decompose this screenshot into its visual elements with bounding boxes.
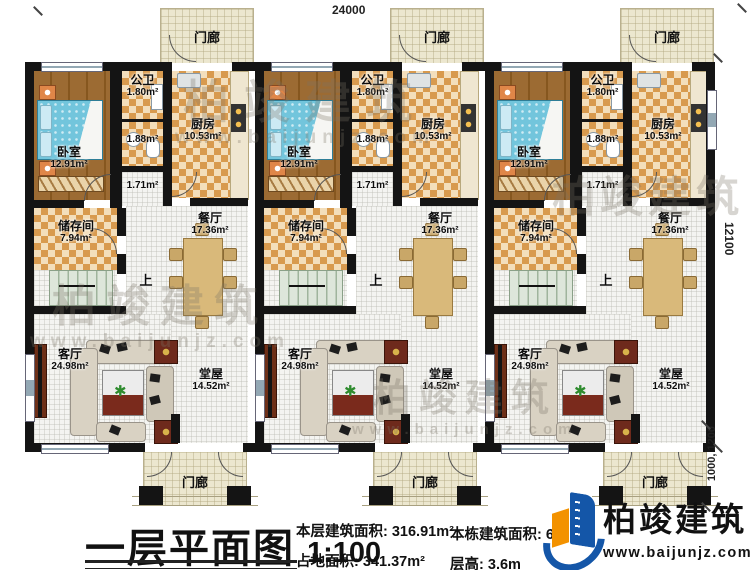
stairs [279, 270, 343, 306]
stairs-up-label: 上 [365, 274, 387, 289]
dimension-tick [737, 3, 747, 13]
plant-icon: ✱ [114, 382, 127, 400]
logo-icon [543, 489, 597, 565]
wall [582, 119, 623, 122]
window [501, 62, 563, 72]
stat-floor-height: 层高: 3.6m [450, 553, 554, 570]
stairs-up-label: 上 [135, 274, 157, 289]
porch-label: 门廊 [144, 472, 246, 491]
porch-bottom: 门廊 [373, 452, 477, 506]
plant-icon: ✱ [344, 382, 357, 400]
nightstand [499, 85, 516, 100]
stairs-arrow-icon [59, 285, 95, 287]
plant-icon: ✱ [574, 382, 587, 400]
stove [231, 104, 246, 132]
house-unit-3: 门廊 ✱ [485, 62, 715, 452]
room-label-main-hall: 堂屋14.52m² [635, 368, 707, 393]
window [501, 444, 569, 454]
room-label-kitchen: 厨房10.53m² [633, 118, 693, 143]
dining-table [643, 238, 683, 316]
porch-bottom: 门廊 [143, 452, 247, 506]
house-unit-1: 门廊 ✱ [25, 62, 255, 452]
room-label-dining: 餐厅17.36m² [403, 212, 477, 237]
wall [352, 166, 393, 172]
room-label-main-hall: 堂屋14.52m² [175, 368, 247, 393]
kitchen-sink [637, 73, 661, 88]
stats-column-2: 本栋建筑面积: 6 层高: 3.6m [450, 523, 554, 570]
room-label-public-bath: 公卫1.80m² [580, 74, 625, 99]
wall [577, 208, 586, 236]
porch-label: 门廊 [374, 472, 476, 491]
stats-column-1: 本层建筑面积: 316.91m² 占地面积: 341.37m² [296, 520, 454, 570]
side-table [614, 340, 638, 364]
wall [631, 414, 640, 443]
room-label-living: 客厅24.98m² [499, 348, 561, 373]
wall [420, 198, 478, 206]
wall [352, 119, 393, 122]
wall [401, 414, 410, 443]
wall [347, 208, 356, 236]
wall [264, 306, 356, 314]
window [25, 354, 35, 422]
brand-name: 柏竣建筑 [603, 493, 750, 541]
stairs-arrow-icon [519, 285, 555, 287]
porch-top: 门廊 [390, 8, 484, 63]
stairs [509, 270, 573, 306]
window [271, 62, 333, 72]
wall [171, 414, 180, 443]
dimension-porch-depth: 1000, 1200 [706, 426, 718, 481]
wall [122, 166, 163, 172]
wall [692, 62, 715, 71]
dining-table [183, 238, 223, 316]
wall [243, 443, 255, 452]
wall [190, 198, 248, 206]
floor-plan-image: 门廊 ✱ [0, 0, 750, 570]
porch-top: 门廊 [620, 8, 714, 63]
side-table [154, 340, 178, 364]
room-label-bath: 1.88m² [580, 134, 625, 145]
room-label-bath: 1.88m² [120, 134, 165, 145]
kitchen-sink [407, 73, 431, 88]
window [41, 444, 109, 454]
dimension-tick [33, 6, 43, 16]
wall [462, 62, 485, 71]
wall [494, 306, 586, 314]
wall [232, 62, 255, 71]
room-label-kitchen: 厨房10.53m² [173, 118, 233, 143]
dining-table [413, 238, 453, 316]
room-label-bedroom: 卧室12.91m² [497, 146, 561, 171]
title-underline [85, 560, 297, 569]
window [707, 90, 717, 150]
room-label-dining: 餐厅17.36m² [633, 212, 707, 237]
wall [347, 254, 356, 274]
room-label-storage: 储存间7.94m² [497, 220, 575, 245]
wall [117, 208, 126, 236]
porch-top: 门廊 [160, 8, 254, 63]
wall [34, 200, 84, 208]
room-label-living: 客厅24.98m² [269, 348, 331, 373]
brand-logo: 柏竣建筑 www.baijunjz.com [543, 489, 748, 567]
window [485, 354, 495, 422]
room-label-hallway: 1.71m² [580, 180, 625, 191]
stairs-arrow-icon [289, 285, 325, 287]
dimension-height: 12100 [722, 222, 736, 255]
stat-land-area: 占地面积: 341.37m² [296, 550, 454, 570]
window [271, 444, 339, 454]
brand-website: www.baijunjz.com [603, 545, 750, 561]
room-label-bedroom: 卧室12.91m² [37, 146, 101, 171]
dimension-width: 24000 [332, 3, 365, 17]
room-label-storage: 储存间7.94m² [37, 220, 115, 245]
brand-text: 柏竣建筑 www.baijunjz.com [603, 493, 750, 561]
wall [577, 254, 586, 274]
window [41, 62, 103, 72]
porch-label: 门廊 [161, 27, 253, 46]
stat-floor-area: 本层建筑面积: 316.91m² [296, 520, 454, 541]
window [255, 354, 265, 422]
wall [582, 166, 623, 172]
wall [494, 200, 544, 208]
side-table [384, 340, 408, 364]
stove [691, 104, 706, 132]
stairs-up-label: 上 [595, 274, 617, 289]
stairs [49, 270, 113, 306]
room-label-hallway: 1.71m² [350, 180, 395, 191]
stove [461, 104, 476, 132]
room-label-main-hall: 堂屋14.52m² [405, 368, 477, 393]
room-label-bath: 1.88m² [350, 134, 395, 145]
house-unit-2: 门廊 ✱ [255, 62, 485, 452]
kitchen-sink [177, 73, 201, 88]
nightstand [39, 85, 56, 100]
room-label-living: 客厅24.98m² [39, 348, 101, 373]
room-label-storage: 储存间7.94m² [267, 220, 345, 245]
stat-building-area: 本栋建筑面积: 6 [450, 523, 554, 544]
wall [473, 443, 485, 452]
room-label-hallway: 1.71m² [120, 180, 165, 191]
porch-label: 门廊 [621, 27, 713, 46]
wall [264, 200, 314, 208]
room-label-public-bath: 公卫1.80m² [350, 74, 395, 99]
room-label-public-bath: 公卫1.80m² [120, 74, 165, 99]
room-label-dining: 餐厅17.36m² [173, 212, 247, 237]
room-label-kitchen: 厨房10.53m² [403, 118, 463, 143]
nightstand [269, 85, 286, 100]
wall [650, 198, 708, 206]
porch-label: 门廊 [391, 27, 483, 46]
wall [122, 119, 163, 122]
room-label-bedroom: 卧室12.91m² [267, 146, 331, 171]
wall [34, 306, 126, 314]
wall [117, 254, 126, 274]
